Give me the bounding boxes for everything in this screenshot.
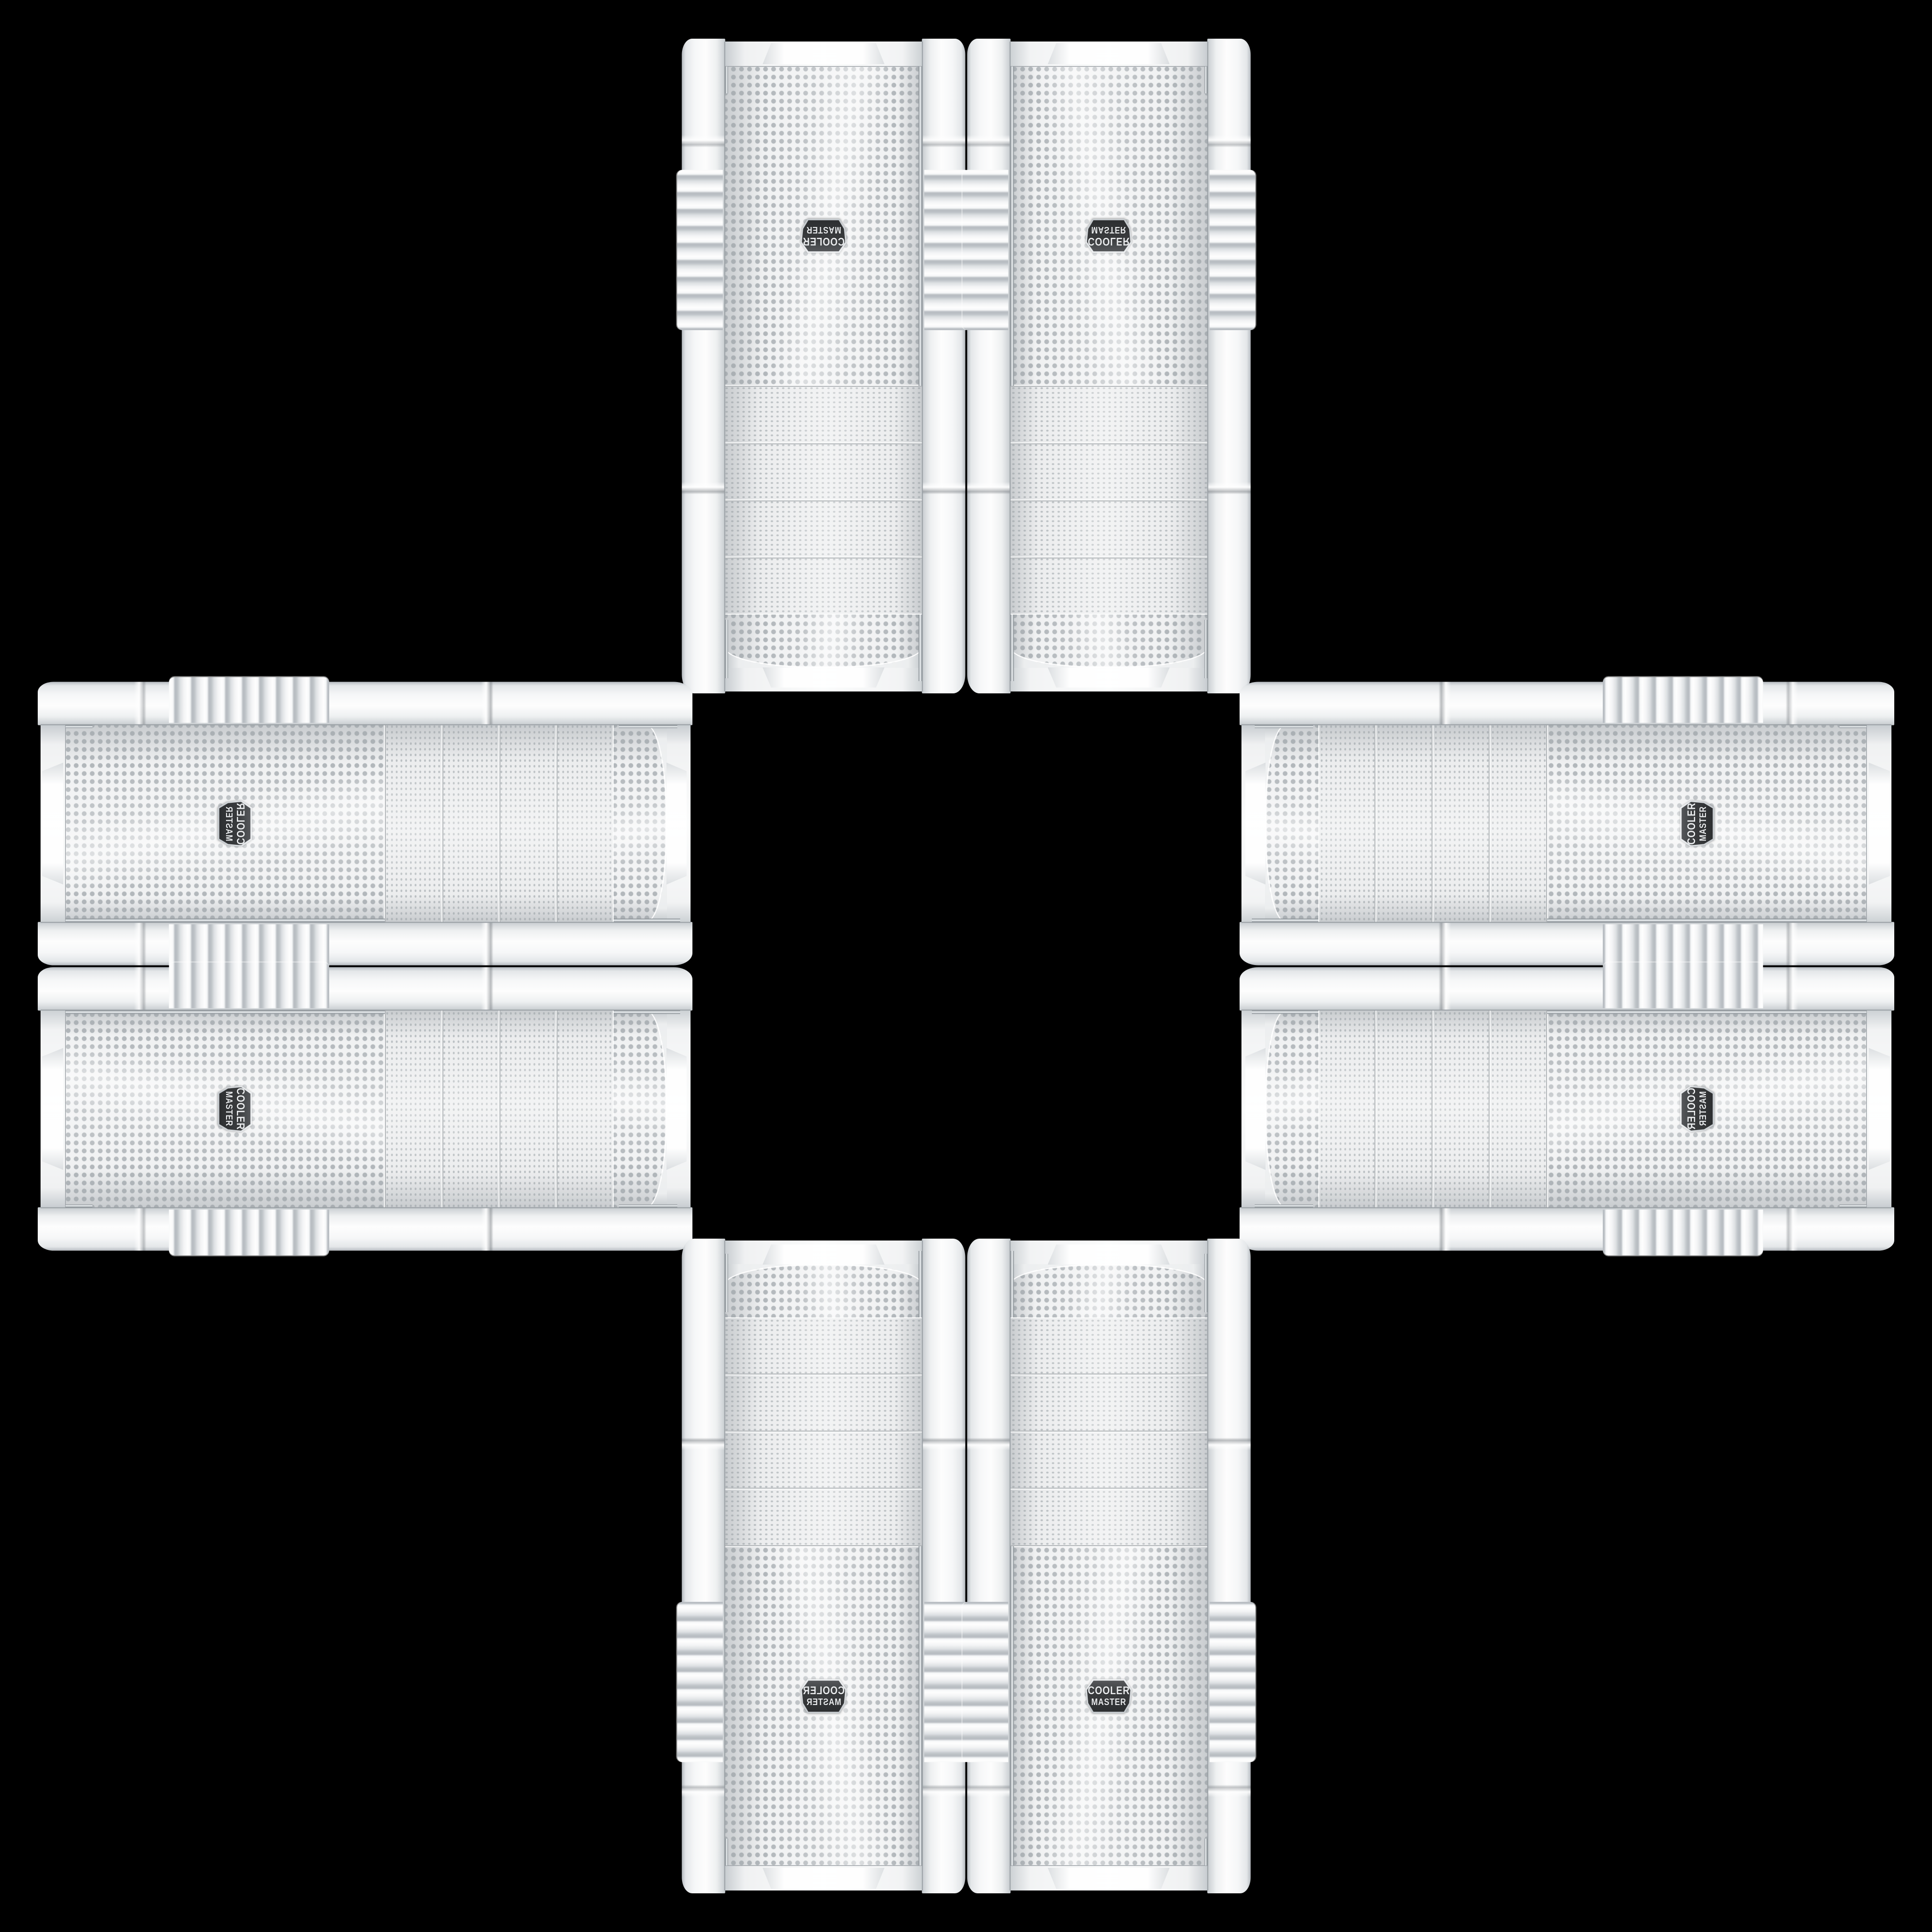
- brand-badge-face: COOLER MASTER: [219, 1087, 250, 1131]
- top-cap-facet: [1245, 1048, 1266, 1170]
- grip-ribs-left: [1603, 962, 1763, 1008]
- case-body: COOLER MASTER: [1240, 967, 1894, 1250]
- bottom-cap-facet: [1048, 1868, 1170, 1889]
- chrome-clip-top-right: [1255, 725, 1313, 728]
- pc-case-right-bottom: COOLER MASTER: [1240, 967, 1894, 1250]
- brand-badge-face: COOLER MASTER: [1087, 1681, 1131, 1712]
- pc-case-left-top: COOLER MASTER: [38, 682, 692, 965]
- case-body: COOLER MASTER: [1240, 682, 1894, 965]
- grip-ribs-right: [169, 1209, 329, 1255]
- top-cap-facet: [666, 762, 687, 884]
- bottom-cap-facet: [1869, 762, 1890, 884]
- bottom-cap: [1010, 1866, 1207, 1890]
- badge-text-line1: COOLER: [1088, 1685, 1130, 1697]
- badge-text-line1: COOLER: [1088, 235, 1130, 247]
- drive-bay-cover-3: [725, 443, 922, 500]
- badge-text-line2: MASTER: [1698, 1091, 1708, 1126]
- brand-badge-outline: COOLER MASTER: [218, 1086, 252, 1132]
- side-rail-right: [682, 1239, 725, 1893]
- case-body: COOLER MASTER: [967, 1239, 1250, 1893]
- brand-badge-outline: COOLER MASTER: [1680, 1086, 1714, 1132]
- drive-bay-cover-2: [1375, 1010, 1432, 1207]
- badge-text-line1: COOLER: [1686, 802, 1698, 844]
- badge-text-line1: COOLER: [234, 802, 246, 844]
- side-rail-left: [922, 39, 965, 693]
- side-rail-left: [1240, 967, 1894, 1010]
- grip-ribs-left: [962, 1602, 1008, 1762]
- top-cap-facet: [1245, 762, 1266, 884]
- drive-bay-cover-3: [442, 725, 500, 922]
- bottom-cap-facet: [762, 1868, 884, 1889]
- bottom-cap: [41, 1010, 65, 1207]
- top-mesh-section: [1265, 1010, 1318, 1207]
- case-body: COOLER MASTER: [682, 1239, 965, 1893]
- brand-badge: COOLER MASTER: [800, 219, 847, 253]
- front-panel: COOLER MASTER: [724, 1241, 923, 1890]
- top-mesh-section: [1010, 615, 1207, 668]
- brand-badge-face: COOLER MASTER: [1087, 220, 1131, 251]
- bottom-cap: [1010, 42, 1207, 66]
- drive-bay-cover-3: [725, 1432, 922, 1489]
- side-rail-right: [682, 39, 725, 693]
- drive-bay-cover-2: [1010, 1374, 1207, 1432]
- side-rail-left: [967, 39, 1010, 693]
- top-cap: [667, 725, 691, 922]
- pc-case-left-bottom: COOLER MASTER: [38, 967, 692, 1250]
- brand-badge: COOLER MASTER: [1086, 1679, 1132, 1713]
- badge-text-line1: COOLER: [234, 1088, 246, 1130]
- drive-bay-cover-4: [1490, 725, 1547, 922]
- badge-text-line2: MASTER: [1091, 1697, 1126, 1707]
- brand-badge-outline: COOLER MASTER: [218, 800, 252, 847]
- case-body: COOLER MASTER: [967, 39, 1250, 693]
- bottom-cap-facet: [42, 762, 63, 884]
- top-mesh-section: [1010, 1264, 1207, 1317]
- drive-bay-cover-1: [725, 558, 922, 615]
- brand-badge: COOLER MASTER: [1086, 219, 1132, 253]
- bottom-cap: [1867, 1010, 1891, 1207]
- brand-badge: COOLER MASTER: [218, 1086, 252, 1132]
- front-panel: COOLER MASTER: [41, 1009, 691, 1208]
- badge-text-line2: MASTER: [806, 1697, 841, 1707]
- drive-bay-cover-4: [1490, 1010, 1547, 1207]
- front-panel: COOLER MASTER: [1009, 1241, 1208, 1890]
- brand-badge-face: COOLER MASTER: [1682, 1087, 1713, 1131]
- grip-ribs-right: [1603, 1209, 1763, 1255]
- drive-bay-cover-2: [725, 500, 922, 558]
- bottom-cap: [725, 42, 922, 66]
- grip-ribs-right: [677, 1602, 723, 1762]
- front-panel: COOLER MASTER: [724, 42, 923, 691]
- bottom-cap-facet: [42, 1048, 63, 1170]
- top-mesh-section: [614, 725, 667, 922]
- brand-badge-face: COOLER MASTER: [1682, 802, 1713, 845]
- top-cap-facet: [1048, 1244, 1170, 1265]
- brand-badge: COOLER MASTER: [218, 800, 252, 847]
- drive-bay-cover-4: [385, 1010, 442, 1207]
- brand-badge-face: COOLER MASTER: [802, 220, 845, 251]
- brand-badge: COOLER MASTER: [800, 1679, 847, 1713]
- pc-case-right-top: COOLER MASTER: [1240, 682, 1894, 965]
- chrome-clip-top-right: [725, 1254, 728, 1312]
- pc-case-top-left: COOLER MASTER: [682, 39, 965, 693]
- drive-bay-cover-3: [1010, 1432, 1207, 1489]
- drive-bay-cover-1: [1318, 1010, 1375, 1207]
- side-rail-right: [1207, 39, 1250, 693]
- top-mesh-section: [1265, 725, 1318, 922]
- pc-case-top-right: COOLER MASTER: [967, 39, 1250, 693]
- drive-bay-cover-1: [557, 1010, 614, 1207]
- chrome-clip-top-right: [619, 725, 677, 728]
- brand-badge-outline: COOLER MASTER: [800, 1679, 847, 1713]
- brand-badge-outline: COOLER MASTER: [1086, 1679, 1132, 1713]
- grip-ribs-left: [962, 170, 1008, 330]
- top-cap: [1010, 1241, 1207, 1264]
- chrome-clip-top-right: [725, 620, 728, 678]
- grip-ribs-right: [1209, 170, 1255, 330]
- top-cap-facet: [762, 667, 884, 688]
- top-mesh-section: [614, 1010, 667, 1207]
- drive-bay-cover-1: [1318, 725, 1375, 922]
- badge-text-line1: COOLER: [1686, 1088, 1698, 1130]
- side-rail-left: [967, 1239, 1010, 1893]
- top-cap: [1241, 1010, 1265, 1207]
- brand-badge-outline: COOLER MASTER: [1680, 800, 1714, 847]
- drive-bay-cover-2: [1375, 725, 1432, 922]
- brand-badge: COOLER MASTER: [1680, 800, 1714, 847]
- bottom-cap: [725, 1866, 922, 1890]
- drive-bay-cover-1: [1010, 558, 1207, 615]
- side-rail-left: [38, 967, 692, 1010]
- drive-bay-cover-3: [1432, 1010, 1490, 1207]
- top-cap: [725, 668, 922, 691]
- drive-bay-cover-4: [385, 725, 442, 922]
- top-cap: [1010, 668, 1207, 691]
- badge-text-line2: MASTER: [1091, 225, 1126, 235]
- drive-bay-cover-1: [725, 1317, 922, 1374]
- chrome-clip-top-right: [1255, 1204, 1313, 1207]
- grip-ribs-right: [1209, 1602, 1255, 1762]
- top-cap: [667, 1010, 691, 1207]
- badge-text-line2: MASTER: [1698, 806, 1708, 841]
- top-mesh-section: [725, 615, 922, 668]
- drive-bay-cover-3: [442, 1010, 500, 1207]
- top-mesh-section: [725, 1264, 922, 1317]
- bottom-cap: [1867, 725, 1891, 922]
- drive-bay-cover-4: [725, 1489, 922, 1546]
- drive-bay-cover-3: [1432, 725, 1490, 922]
- drive-bay-cover-2: [500, 725, 557, 922]
- top-cap-facet: [1048, 667, 1170, 688]
- side-rail-right: [1207, 1239, 1250, 1893]
- drive-bay-cover-2: [500, 1010, 557, 1207]
- grip-ribs-left: [169, 962, 329, 1008]
- grip-ribs-right: [169, 677, 329, 723]
- case-body: COOLER MASTER: [38, 682, 692, 965]
- bottom-cap-facet: [1869, 1048, 1890, 1170]
- brand-badge-outline: COOLER MASTER: [800, 219, 847, 253]
- badge-text-line1: COOLER: [802, 1685, 844, 1697]
- side-rail-right: [1240, 1207, 1894, 1250]
- side-rail-left: [1240, 922, 1894, 965]
- front-panel: COOLER MASTER: [41, 724, 691, 923]
- grip-ribs-right: [1603, 677, 1763, 723]
- badge-text-line1: COOLER: [802, 235, 844, 247]
- drive-bay-cover-4: [1010, 386, 1207, 443]
- side-rail-right: [38, 682, 692, 725]
- case-body: COOLER MASTER: [38, 967, 692, 1250]
- bottom-cap-facet: [762, 43, 884, 64]
- drive-bay-cover-4: [725, 386, 922, 443]
- top-cap: [725, 1241, 922, 1264]
- collage-canvas: COOLER MASTER: [0, 0, 1932, 1932]
- badge-text-line2: MASTER: [806, 225, 841, 235]
- drive-bay-cover-4: [1010, 1489, 1207, 1546]
- top-cap: [1241, 725, 1265, 922]
- bottom-cap: [41, 725, 65, 922]
- chrome-clip-top-right: [1204, 620, 1207, 678]
- front-panel: COOLER MASTER: [1241, 1009, 1891, 1208]
- pc-case-bottom-left: COOLER MASTER: [682, 1239, 965, 1893]
- side-rail-left: [922, 1239, 965, 1893]
- brand-badge-face: COOLER MASTER: [802, 1681, 845, 1712]
- drive-bay-cover-2: [1010, 500, 1207, 558]
- pc-case-bottom-right: COOLER MASTER: [967, 1239, 1250, 1893]
- bottom-cap-facet: [1048, 43, 1170, 64]
- front-panel: COOLER MASTER: [1241, 724, 1891, 923]
- grip-ribs-right: [677, 170, 723, 330]
- drive-bay-cover-2: [725, 1374, 922, 1432]
- side-rail-right: [1240, 682, 1894, 725]
- chrome-clip-top-right: [619, 1204, 677, 1207]
- drive-bay-cover-1: [557, 725, 614, 922]
- side-rail-left: [38, 922, 692, 965]
- top-cap-facet: [762, 1244, 884, 1265]
- drive-bay-cover-1: [1010, 1317, 1207, 1374]
- badge-text-line2: MASTER: [224, 1091, 234, 1126]
- brand-badge-outline: COOLER MASTER: [1086, 219, 1132, 253]
- front-panel: COOLER MASTER: [1009, 42, 1208, 691]
- drive-bay-cover-3: [1010, 443, 1207, 500]
- brand-badge: COOLER MASTER: [1680, 1086, 1714, 1132]
- side-rail-right: [38, 1207, 692, 1250]
- top-cap-facet: [666, 1048, 687, 1170]
- brand-badge-face: COOLER MASTER: [219, 802, 250, 845]
- badge-text-line2: MASTER: [224, 806, 234, 841]
- case-body: COOLER MASTER: [682, 39, 965, 693]
- chrome-clip-top-right: [1204, 1254, 1207, 1312]
